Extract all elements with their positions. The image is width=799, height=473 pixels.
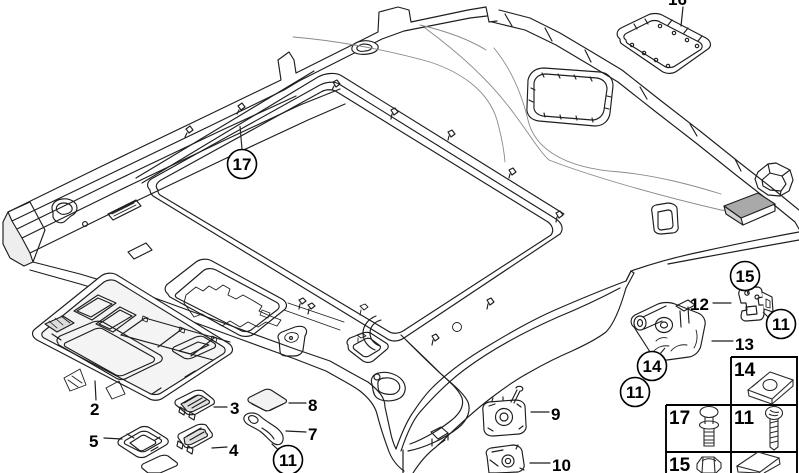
svg-text:11: 11	[772, 315, 790, 334]
svg-text:15: 15	[669, 455, 691, 473]
svg-text:5: 5	[89, 432, 98, 451]
svg-text:3: 3	[230, 399, 239, 418]
svg-text:16: 16	[668, 0, 687, 9]
svg-text:14: 14	[643, 357, 662, 376]
svg-text:12: 12	[690, 295, 709, 314]
svg-text:9: 9	[551, 405, 560, 424]
svg-text:4: 4	[229, 441, 239, 460]
svg-text:11: 11	[279, 451, 297, 470]
svg-text:11: 11	[734, 408, 755, 429]
svg-text:11: 11	[626, 383, 644, 402]
svg-text:8: 8	[308, 396, 317, 415]
svg-text:2: 2	[90, 400, 99, 419]
svg-text:10: 10	[552, 456, 571, 473]
svg-text:17: 17	[669, 408, 690, 429]
svg-text:17: 17	[233, 155, 252, 174]
svg-text:7: 7	[308, 425, 317, 444]
svg-text:13: 13	[735, 335, 754, 354]
svg-text:15: 15	[736, 267, 755, 286]
svg-text:14: 14	[734, 360, 756, 381]
